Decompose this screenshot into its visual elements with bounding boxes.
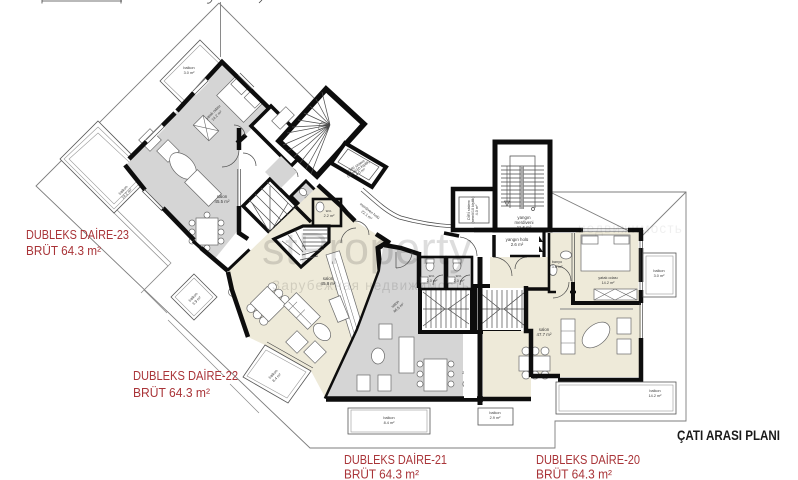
svg-text:yatak odası: yatak odası (598, 276, 617, 280)
svg-text:2.2 m²: 2.2 m² (324, 214, 335, 218)
svg-text:DUBLEKS DAİRE-22: DUBLEKS DAİRE-22 (133, 368, 238, 383)
svg-text:8.4 m²: 8.4 m² (384, 421, 395, 425)
svg-text:balkon: balkon (489, 411, 500, 415)
svg-text:DUBLEKS DAİRE-21: DUBLEKS DAİRE-21 (344, 452, 447, 467)
svg-text:DUBLEKS DAİRE-20: DUBLEKS DAİRE-20 (536, 452, 640, 467)
svg-text:2.9 m²: 2.9 m² (490, 416, 501, 420)
svg-text:BRÜT 64.3 m²: BRÜT 64.3 m² (536, 467, 613, 480)
svg-text:balkon: balkon (183, 66, 194, 70)
svg-text:2.6 m²: 2.6 m² (511, 242, 524, 247)
svg-text:3.0 m²: 3.0 m² (654, 274, 665, 278)
svg-text:balkon: balkon (649, 389, 660, 393)
svg-text:w.c.: w.c. (326, 209, 333, 213)
svg-text:BRÜT 64.3 m²: BRÜT 64.3 m² (133, 385, 211, 400)
svg-text:banyo: banyo (552, 260, 562, 264)
svg-text:balkon: balkon (383, 416, 394, 420)
svg-text:недвижимость: недвижимость (578, 221, 683, 236)
svg-text:balkon: balkon (653, 269, 664, 273)
svg-text:14.2 m²: 14.2 m² (649, 394, 663, 398)
svg-text:14.2 m²: 14.2 m² (602, 281, 616, 285)
svg-text:BRÜT 64.3 m²: BRÜT 64.3 m² (26, 243, 102, 258)
svg-text:4.0 m²: 4.0 m² (475, 204, 479, 215)
svg-text:45.5 m²: 45.5 m² (215, 199, 230, 204)
svg-text:47.7 m²: 47.7 m² (537, 332, 552, 337)
svg-text:ÇATI ARASI PLANI: ÇATI ARASI PLANI (677, 428, 780, 443)
svg-text:DUBLEKS DAİRE-23: DUBLEKS DAİRE-23 (26, 227, 129, 242)
svg-text:Зарубежная недвижимость: Зарубежная недвижимость (272, 278, 470, 293)
svg-text:3.0 m²: 3.0 m² (184, 71, 195, 75)
svg-text:BRÜT 64.3 m²: BRÜT 64.3 m² (344, 467, 420, 480)
svg-text:stProperty: stProperty (262, 223, 472, 274)
